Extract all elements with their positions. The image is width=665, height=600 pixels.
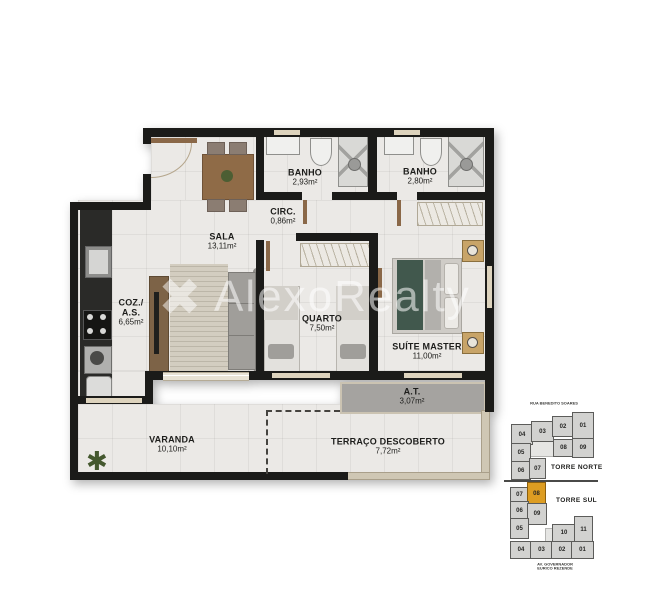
room-name: CIRC. [270,207,296,217]
room-name: BANHO [403,167,437,177]
balcony-plant: ✱ [86,448,108,474]
window-suite-at [404,373,462,378]
terrace-parapet-bottom [346,472,490,480]
bedroom-wardrobe [300,243,374,267]
toilet [310,138,332,166]
wall-right-lower [485,380,494,412]
room-name: A.S. [119,308,144,318]
window-quarto [272,373,330,378]
window-kitchen [86,398,142,403]
room-label-sala: SALA 13,11m² [208,232,237,251]
room-label-circ: CIRC. 0,86m² [270,207,296,226]
room-name: BANHO [288,168,322,178]
wall-top [145,128,494,137]
shower-drain [348,158,361,171]
bed-pillow [268,344,294,359]
washer-door [90,351,104,365]
wall-banho1-bottom-a [256,192,302,200]
room-area: 11,00m² [392,352,461,361]
room-area: 0,86m² [270,217,296,226]
room-name: SALA [208,232,237,242]
terrace-parapet-right [481,410,490,478]
toilet [420,138,442,166]
nightstand-lamp [467,337,478,348]
room-name: VARANDA [149,435,195,445]
wall-banho2-bottom-b [417,192,494,200]
room-label-suite: SUÍTE MASTER 11,00m² [392,342,461,361]
shower-drain [460,158,473,171]
sliding-door-track [163,375,249,376]
dining-chair [207,142,225,155]
wall-left [70,202,78,480]
dining-chair [207,199,225,212]
room-label-terraco: TERRAÇO DESCOBERTO 7,72m² [331,437,445,456]
floorplan-page: ✱ [0,0,665,600]
room-area: 3,07m² [400,397,425,406]
nightstand-lamp [467,245,478,256]
room-name: SUÍTE MASTER [392,342,461,352]
room-area: 2,93m² [288,178,322,187]
dining-chair [229,199,247,212]
wall-banho1-bottom-b [332,192,377,200]
room-label-cozinha: COZ./ A.S. 6,65m² [119,298,144,327]
room-name: A.T. [400,387,425,397]
sliding-door-varanda [163,372,249,381]
room-name: COZ./ [119,298,144,308]
terrace-dashed-line-horizontal [266,410,340,412]
room-label-banho-2: BANHO 2,80m² [403,167,437,186]
wall-sala-banho [256,128,264,200]
stove-burner [100,314,106,320]
wall-entry-upper [143,128,151,144]
stove-burner [87,314,93,320]
terrace-dashed-line-vertical [266,410,268,474]
room-area: 10,10m² [149,445,195,454]
window-banho2 [394,130,420,135]
room-area: 13,11m² [208,242,237,251]
watermark-brand: AlexoRealty [214,272,471,322]
room-label-at: A.T. 3,07m² [400,387,425,406]
room-label-varanda: VARANDA 10,10m² [149,435,195,454]
window-suite [487,266,492,308]
room-area: 7,50m² [302,324,342,333]
dining-chair [229,142,247,155]
banho2-door-leaf [397,200,401,226]
wall-quarto-top [296,233,377,241]
wall-balcony-parapet [70,472,348,480]
wall-right [485,128,494,380]
kitchen-sink [85,246,112,278]
banho1-door-leaf [303,200,307,224]
room-label-banho-1: BANHO 2,93m² [288,168,322,187]
room-area: 6,65m² [119,318,144,327]
wall-step [70,202,150,210]
room-area: 7,72m² [331,447,445,456]
stove-burner [100,328,106,334]
suite-wardrobe [417,202,483,226]
room-area: 2,80m² [403,177,437,186]
wall-between-banhos [368,128,377,200]
window-banho1 [274,130,300,135]
table-plant [221,170,233,182]
sofa-cushion-line [228,335,254,336]
stove-burner [87,328,93,334]
bed-pillow [340,344,366,359]
wall-banho2-bottom-a [377,192,397,200]
watermark-x-logo: ✖ [158,268,202,328]
quarto-door-leaf [266,241,270,271]
room-name: TERRAÇO DESCOBERTO [331,437,445,447]
